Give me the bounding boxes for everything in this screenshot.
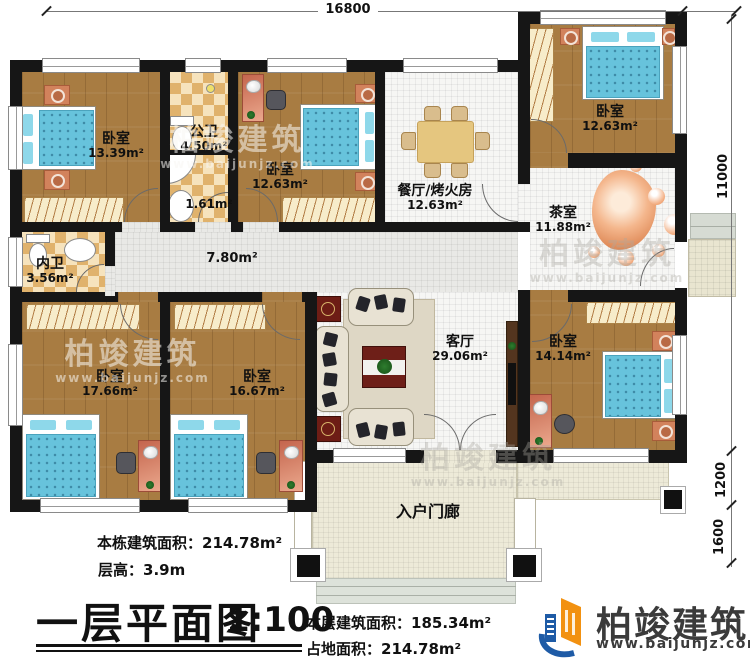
pillow	[213, 419, 241, 431]
dining-chair	[475, 132, 490, 150]
room-area: 17.66m²	[78, 385, 142, 399]
room-area: 3.56m²	[22, 272, 78, 286]
room-name: 卧室	[531, 334, 595, 350]
room-area: 1.61m²	[184, 198, 234, 212]
tea-decor-bubble	[588, 246, 600, 258]
room-name: 卧室	[578, 104, 642, 120]
mattress	[303, 108, 359, 166]
building-area-label: 本栋建筑面积：	[97, 534, 202, 552]
cushion	[355, 295, 371, 312]
room-name: 客厅	[427, 334, 493, 350]
dining-chair	[424, 106, 441, 121]
room-area: 14.14m²	[531, 350, 595, 364]
dimension-top-label: 16800	[318, 2, 378, 17]
pillow	[626, 31, 656, 43]
toilet	[26, 234, 50, 243]
tv-stand	[506, 321, 518, 447]
pillow	[65, 419, 93, 431]
window	[403, 58, 498, 73]
door-opening	[530, 290, 568, 302]
chair	[266, 90, 286, 110]
room-label-wash: 1.61m²	[184, 198, 234, 212]
room-label-bedroom-tm: 卧室 12.63m²	[249, 162, 311, 192]
wardrobe	[282, 197, 378, 225]
wardrobe	[586, 302, 676, 324]
brand-logo-icon	[536, 594, 592, 658]
nightstand	[44, 85, 70, 105]
desk	[528, 394, 552, 448]
window	[553, 448, 649, 463]
pillow	[29, 419, 57, 431]
porch-steps	[316, 578, 516, 604]
dimension-right-upper-label: 11000	[716, 140, 731, 212]
building-area-line: 本栋建筑面积：214.78m²	[97, 532, 282, 553]
pillow	[590, 31, 620, 43]
room-name: 内卫	[22, 256, 78, 272]
room-area: 7.80m²	[204, 252, 260, 267]
door-opening	[195, 222, 231, 232]
wall-segment	[518, 290, 530, 463]
door-opening	[122, 222, 160, 232]
door-opening	[118, 292, 158, 302]
porch-pillar-right	[513, 555, 536, 577]
room-label-bedroom-tl: 卧室 13.39m²	[78, 131, 154, 161]
room-area: 16.67m²	[225, 385, 289, 399]
wardrobe	[174, 304, 266, 330]
sofa-top	[348, 288, 414, 326]
room-label-dining: 餐厅/烤火房 12.63m²	[383, 183, 487, 213]
tea-decor-bubble	[618, 250, 634, 266]
side-terrace-step-line	[690, 226, 736, 227]
door-opening	[530, 153, 568, 168]
lamp	[143, 446, 158, 459]
door-opening	[262, 292, 302, 302]
cushion	[355, 422, 370, 438]
lamp	[533, 401, 548, 415]
mattress	[586, 46, 660, 98]
plant	[508, 342, 516, 350]
plant	[535, 437, 543, 445]
door-opening	[105, 266, 115, 296]
double-bed	[170, 414, 248, 500]
mattress	[26, 434, 96, 497]
window	[8, 106, 23, 170]
window	[672, 335, 687, 415]
brand-url: www.baijunjz.com	[596, 636, 750, 652]
room-label-porch: 入户门廊	[390, 503, 466, 521]
footprint-label: 占地面积：	[306, 640, 381, 658]
room-name: 卧室	[78, 131, 154, 147]
pillow	[22, 113, 34, 137]
window	[333, 448, 406, 463]
building-area-value: 214.78m²	[202, 534, 282, 552]
room-label-inner-bath: 内卫 3.56m²	[22, 256, 78, 286]
room-name: 茶室	[531, 205, 595, 221]
dining-chair	[424, 163, 441, 178]
wardrobe	[24, 197, 124, 225]
hallway-floor	[115, 232, 518, 292]
dimension-line-top	[45, 11, 737, 12]
room-label-bedroom-tr: 卧室 12.63m²	[578, 104, 642, 134]
room-label-public-bath: 公卫 4.50m²	[176, 124, 232, 154]
nightstand	[44, 170, 70, 190]
floor-height-value: 3.9m	[143, 561, 185, 579]
main-door-opening	[424, 450, 496, 463]
office-chair	[554, 414, 575, 434]
wall-segment	[305, 292, 317, 512]
plant	[146, 481, 154, 489]
tv	[508, 363, 516, 405]
window	[672, 46, 687, 134]
room-name: 卧室	[78, 369, 142, 385]
porch-pillar-left	[297, 555, 320, 577]
side-table	[315, 416, 341, 442]
door-opening	[243, 222, 279, 232]
double-bed	[22, 414, 100, 500]
room-label-hallway: 7.80m²	[204, 252, 260, 267]
plant	[377, 359, 392, 374]
room-area: 12.63m²	[383, 199, 487, 213]
cushion	[374, 424, 388, 440]
room-area: 13.39m²	[78, 147, 154, 161]
room-label-bedroom-br: 卧室 14.14m²	[531, 334, 595, 364]
room-name: 卧室	[225, 369, 289, 385]
footprint-value: 214.78m²	[381, 640, 461, 658]
room-area: 29.06m²	[427, 350, 493, 364]
sofa-bottom	[348, 408, 414, 446]
room-name: 卧室	[249, 162, 311, 178]
plant	[247, 111, 255, 119]
desk	[279, 440, 303, 492]
dimension-right-lower-label: 1600	[712, 514, 727, 560]
porch-floor-arm	[517, 461, 669, 500]
door-opening	[675, 242, 687, 288]
chair	[116, 452, 136, 474]
double-bed	[300, 104, 378, 170]
dining-chair	[451, 163, 468, 178]
nightstand	[560, 28, 580, 45]
cushion	[323, 372, 337, 386]
mattress	[605, 355, 661, 417]
window	[185, 58, 221, 73]
porch-step-line2	[316, 595, 516, 596]
title-underline-thick	[36, 644, 302, 647]
window	[42, 58, 140, 73]
side-table	[315, 296, 341, 322]
room-area: 4.50m²	[176, 140, 232, 154]
title-underline-thin	[36, 650, 302, 652]
window	[188, 498, 288, 513]
double-bed	[582, 26, 664, 100]
dimension-line-right	[731, 15, 732, 567]
mattress	[174, 434, 244, 497]
cushion	[392, 297, 406, 313]
dining-chair	[451, 106, 468, 121]
cushion	[374, 294, 389, 310]
lamp	[284, 446, 299, 459]
double-bed	[602, 351, 678, 419]
pillow	[364, 111, 375, 135]
room-name: 餐厅/烤火房	[383, 183, 487, 199]
room-label-bedroom-bm: 卧室 16.67m²	[225, 369, 289, 399]
door-opening	[518, 184, 530, 222]
window	[8, 237, 23, 287]
room-label-tea: 茶室 11.88m²	[531, 205, 595, 235]
room-area: 11.88m²	[531, 221, 595, 235]
side-terrace-floor	[688, 239, 736, 297]
room-area: 12.63m²	[249, 178, 311, 192]
porch-step-line1	[316, 586, 516, 587]
room-label-bedroom-bl: 卧室 17.66m²	[78, 369, 142, 399]
floor-area-line: 本层建筑面积：185.34m²	[306, 612, 491, 633]
cushion	[323, 332, 339, 348]
tea-decor-bubble	[648, 188, 665, 205]
room-area: 12.63m²	[578, 120, 642, 134]
lamp	[246, 80, 261, 93]
floor-area-label: 本层建筑面积：	[306, 614, 411, 632]
room-label-living: 客厅 29.06m²	[427, 334, 493, 364]
room-name: 入户门廊	[390, 503, 466, 521]
window	[540, 10, 666, 25]
plant	[287, 481, 295, 489]
window	[267, 58, 347, 73]
chair	[256, 452, 276, 474]
pillow	[177, 419, 205, 431]
footprint-line: 占地面积：214.78m²	[306, 638, 461, 659]
light-symbol	[206, 84, 215, 93]
wall-segment	[160, 60, 170, 230]
window	[8, 344, 23, 426]
sofa-left	[315, 326, 349, 412]
cushion	[392, 421, 405, 436]
nightstand	[662, 28, 675, 45]
floor-plan: 卧室 13.39m² 公卫 4.50m² 1.61m² 卧室 12.63m² 餐…	[0, 0, 750, 665]
porch-pillar-corner	[664, 490, 682, 509]
room-name: 公卫	[176, 124, 232, 140]
cushion	[321, 391, 337, 407]
pillow	[364, 139, 375, 163]
dressing-table	[242, 74, 264, 122]
dining-chair	[401, 132, 416, 150]
wall-segment	[160, 302, 170, 512]
coffee-table	[362, 346, 406, 388]
cushion	[322, 352, 337, 367]
floor-area-value: 185.34m²	[411, 614, 491, 632]
desk	[138, 440, 162, 492]
pillow	[22, 141, 34, 165]
dining-table	[417, 121, 474, 163]
floor-height-label: 层高：	[98, 561, 143, 579]
dimension-right-mid-label: 1200	[714, 458, 729, 502]
closet	[528, 28, 554, 122]
window	[40, 498, 140, 513]
floor-height-line: 层高：3.9m	[98, 559, 185, 580]
